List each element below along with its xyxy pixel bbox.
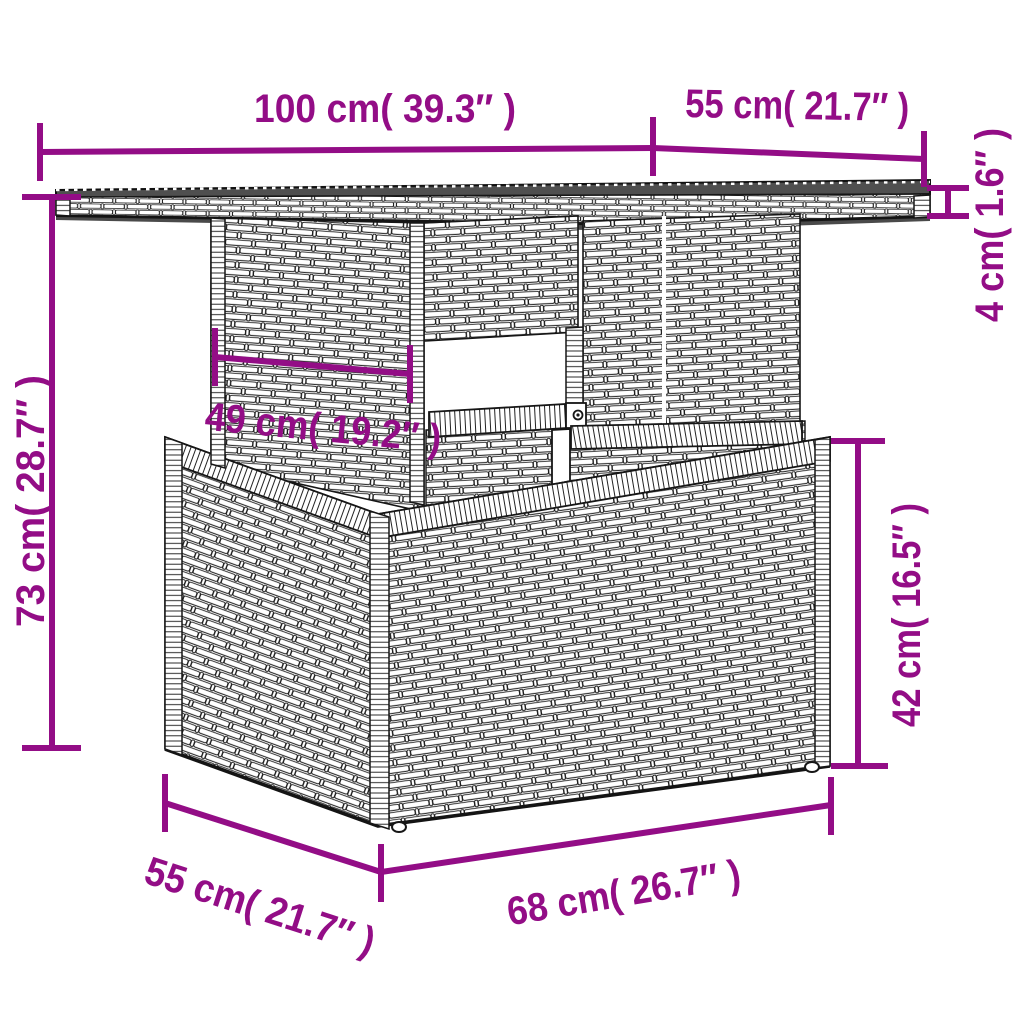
svg-text:73 cm( 28.7″ ): 73 cm( 28.7″ )	[9, 375, 53, 627]
svg-text:42 cm( 16.5″ ): 42 cm( 16.5″ )	[885, 503, 929, 727]
svg-text:4 cm( 1.6″ ): 4 cm( 1.6″ )	[968, 128, 1012, 322]
svg-text:100 cm( 39.3″ ): 100 cm( 39.3″ )	[254, 87, 516, 131]
svg-text:55 cm( 21.7″ ): 55 cm( 21.7″ )	[685, 82, 910, 130]
